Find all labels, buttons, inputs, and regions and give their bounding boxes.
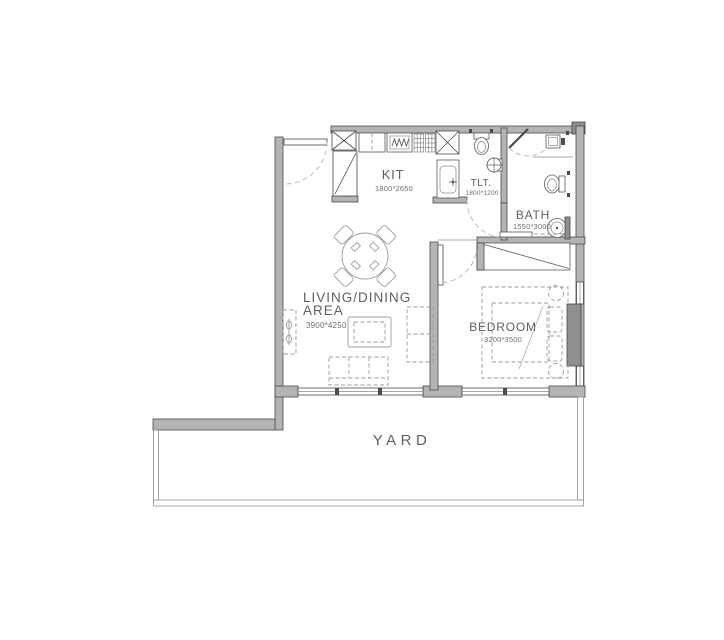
coffee-table-inner — [354, 322, 385, 342]
washing-machine-dot — [556, 227, 558, 229]
toilet-bowl-icon — [475, 138, 489, 155]
living-window-mullion — [335, 388, 339, 395]
wall-tap-mark — [469, 129, 472, 133]
bath-sink-tap — [561, 138, 565, 145]
bath-toilet-tank — [559, 176, 565, 192]
bedroom-right-column — [567, 304, 581, 366]
room-labels: KIT 1800*2650 TLT. 1800*1200 BATH 1550*3… — [303, 167, 551, 449]
wall-tap-mark — [567, 193, 570, 197]
toilet-dims: 1800*1200 — [465, 190, 498, 197]
kitchen-label: KIT — [382, 167, 405, 182]
yard-fence-left — [154, 430, 159, 500]
kitchen-faucet-dot — [452, 181, 455, 184]
dining-chair — [376, 225, 397, 246]
yard-label: YARD — [373, 432, 432, 449]
wardrobe-end-panel — [477, 243, 484, 270]
lounge-chaise — [407, 307, 433, 362]
place-setting — [351, 242, 360, 251]
kitchen-dims: 1800*2650 — [375, 184, 413, 193]
yard-boundary — [153, 397, 584, 506]
bed-throw-line — [519, 306, 543, 369]
toilet-label: TLT. — [471, 178, 492, 189]
bath-sink-icon — [546, 135, 560, 148]
washing-machine-front — [565, 217, 570, 239]
yard-step-wall — [153, 419, 275, 430]
shower-screen — [500, 232, 532, 237]
sofa — [329, 357, 388, 385]
tv-unit — [283, 310, 296, 354]
bedroom-window-mullion — [503, 388, 507, 395]
dining-chair — [376, 267, 397, 288]
entry-door-swing-arc — [285, 142, 327, 184]
living-bedroom-wall — [430, 242, 438, 390]
floor-plan-page: KIT 1800*2650 TLT. 1800*1200 BATH 1550*3… — [0, 0, 724, 640]
closet-bottom-wall — [332, 196, 358, 202]
living-label-line2: AREA — [303, 303, 344, 318]
bottom-wall-right-block — [549, 386, 585, 397]
bedroom-door-swing-arc — [439, 245, 477, 283]
wall-tap-mark — [567, 171, 570, 175]
hob-burner-grid — [414, 134, 435, 152]
yard-fence-bottom — [154, 500, 584, 506]
bedside-lamp — [549, 286, 564, 301]
bath-toilet-bowl-icon — [545, 175, 560, 193]
living-dims: 3900*4250 — [306, 321, 347, 330]
bottom-wall-left-block — [275, 386, 298, 397]
living-window-mullion — [378, 388, 382, 395]
bath-dims: 1550*3000 — [513, 222, 551, 231]
bedroom-door-leaf — [438, 245, 443, 285]
wall-tap-mark — [566, 131, 569, 135]
bedroom-furniture — [477, 243, 570, 379]
wall-tap-mark — [490, 129, 493, 133]
toilet-door-swing-arc — [467, 200, 505, 238]
floor-plan-drawing: KIT 1800*2650 TLT. 1800*1200 BATH 1550*3… — [0, 0, 724, 640]
bedside-lamp — [549, 364, 564, 379]
bottom-wall-center-block — [423, 386, 462, 397]
dining-chair — [334, 225, 355, 246]
yard-fence-right — [578, 397, 584, 500]
place-setting — [370, 261, 379, 270]
bath-label: BATH — [516, 208, 550, 222]
bedroom-dims: 3200*3500 — [484, 335, 522, 344]
dining-chair — [334, 267, 355, 288]
place-setting — [351, 261, 360, 270]
entry-door-leaf — [284, 139, 327, 145]
bedroom-label: BEDROOM — [469, 320, 537, 334]
wardrobe — [477, 243, 570, 270]
toilet-fixtures — [469, 129, 502, 173]
dining-table — [342, 233, 388, 279]
place-setting — [370, 242, 379, 251]
